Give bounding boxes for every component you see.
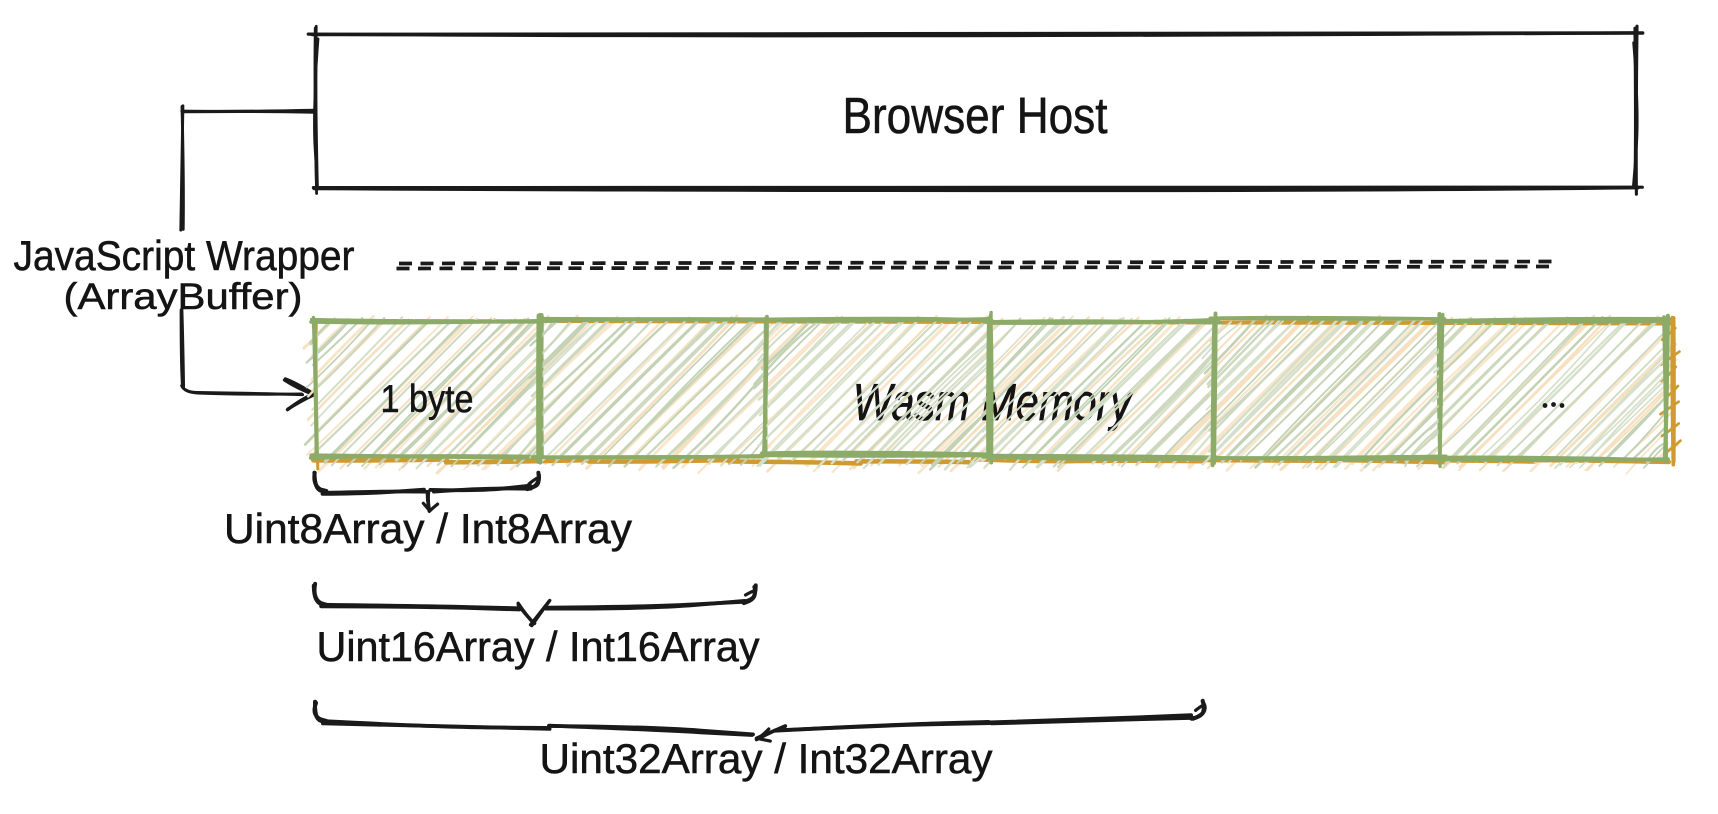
svg-text:Uint16Array / Int16Array: Uint16Array / Int16Array (317, 623, 760, 670)
svg-text:Browser Host: Browser Host (843, 87, 1108, 144)
svg-text:Uint32Array / Int32Array: Uint32Array / Int32Array (540, 735, 993, 782)
svg-text:JavaScript Wrapper: JavaScript Wrapper (14, 232, 355, 279)
svg-text:Uint8Array / Int8Array: Uint8Array / Int8Array (224, 505, 632, 552)
svg-text:1 byte: 1 byte (381, 378, 474, 421)
svg-text:(ArrayBuffer): (ArrayBuffer) (64, 275, 303, 317)
